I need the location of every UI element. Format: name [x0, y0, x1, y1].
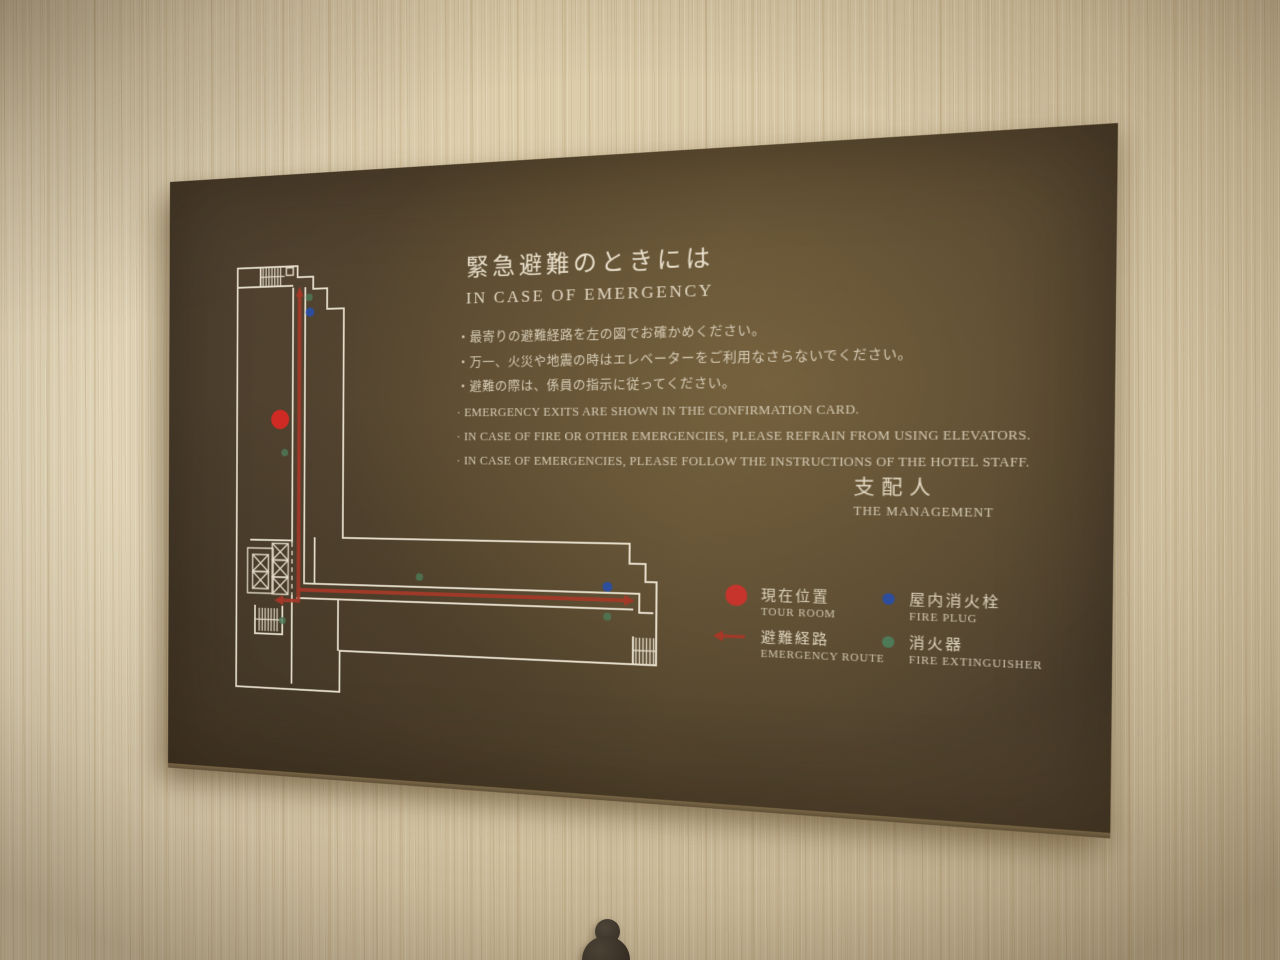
japanese-instructions: ・最寄りの避難経路を左の図でお確かめください。 ・万一、火災や地震の時はエレベー…	[457, 309, 1046, 398]
fire-plug-marker-1	[306, 307, 315, 317]
latch-disc	[582, 936, 630, 960]
legend-item-fire-extinguisher: 消火器 FIRE EXTINGUISHER	[882, 631, 1043, 673]
signature-block: 支配人 THE MANAGEMENT	[853, 472, 994, 521]
fire-plug-legend-dot	[882, 593, 894, 605]
fire-plug-marker-2	[602, 582, 612, 592]
staircase-top	[261, 267, 294, 286]
legend-label-jp: 現在位置	[761, 584, 836, 607]
legend-label-en: EMERGENCY ROUTE	[761, 649, 885, 666]
legend-label-en: TOUR ROOM	[761, 607, 836, 621]
legend-label-en: FIRE EXTINGUISHER	[909, 655, 1043, 672]
legend-item-fire-plug: 屋内消火栓 FIRE PLUG	[882, 588, 1001, 627]
instruction-line-en-3: · IN CASE OF EMERGENCIES, PLEASE FOLLOW …	[456, 449, 1044, 476]
instruction-line-en-1: · EMERGENCY EXITS ARE SHOWN IN THE CONFI…	[457, 395, 1046, 425]
signature-japanese: 支配人	[854, 472, 995, 502]
photo-scene: 緊急避難のときには IN CASE OF EMERGENCY ・最寄りの避難経路…	[0, 0, 1280, 960]
current-position-legend-dot	[725, 584, 747, 606]
elevator-bank	[247, 543, 288, 595]
legend-label-en: FIRE PLUG	[909, 612, 1001, 627]
door-latch-cover	[582, 936, 642, 960]
signature-english: THE MANAGEMENT	[853, 503, 994, 521]
route-arrow-icon	[712, 628, 747, 644]
sign-title-block: 緊急避難のときには IN CASE OF EMERGENCY	[389, 234, 804, 311]
staircase-middle	[255, 605, 282, 635]
legend-label-jp: 避難経路	[761, 626, 885, 652]
legend-label-jp: 消火器	[909, 632, 1043, 659]
legend-item-evacuation-route: 避難経路 EMERGENCY ROUTE	[712, 624, 885, 665]
current-position-marker	[271, 410, 289, 430]
legend-item-current-position: 現在位置 TOUR ROOM	[725, 583, 836, 620]
instruction-line-en-2: · IN CASE OF FIRE OR OTHER EMERGENCIES, …	[457, 422, 1045, 449]
legend-label-jp: 屋内消火栓	[909, 589, 1001, 613]
fire-extinguisher-legend-dot	[882, 636, 894, 648]
english-instructions: · EMERGENCY EXITS ARE SHOWN IN THE CONFI…	[456, 395, 1045, 476]
sign-title-japanese: 緊急避難のときには	[389, 234, 804, 285]
emergency-sign-plaque: 緊急避難のときには IN CASE OF EMERGENCY ・最寄りの避難経路…	[168, 123, 1118, 833]
staircase-right	[633, 636, 656, 665]
